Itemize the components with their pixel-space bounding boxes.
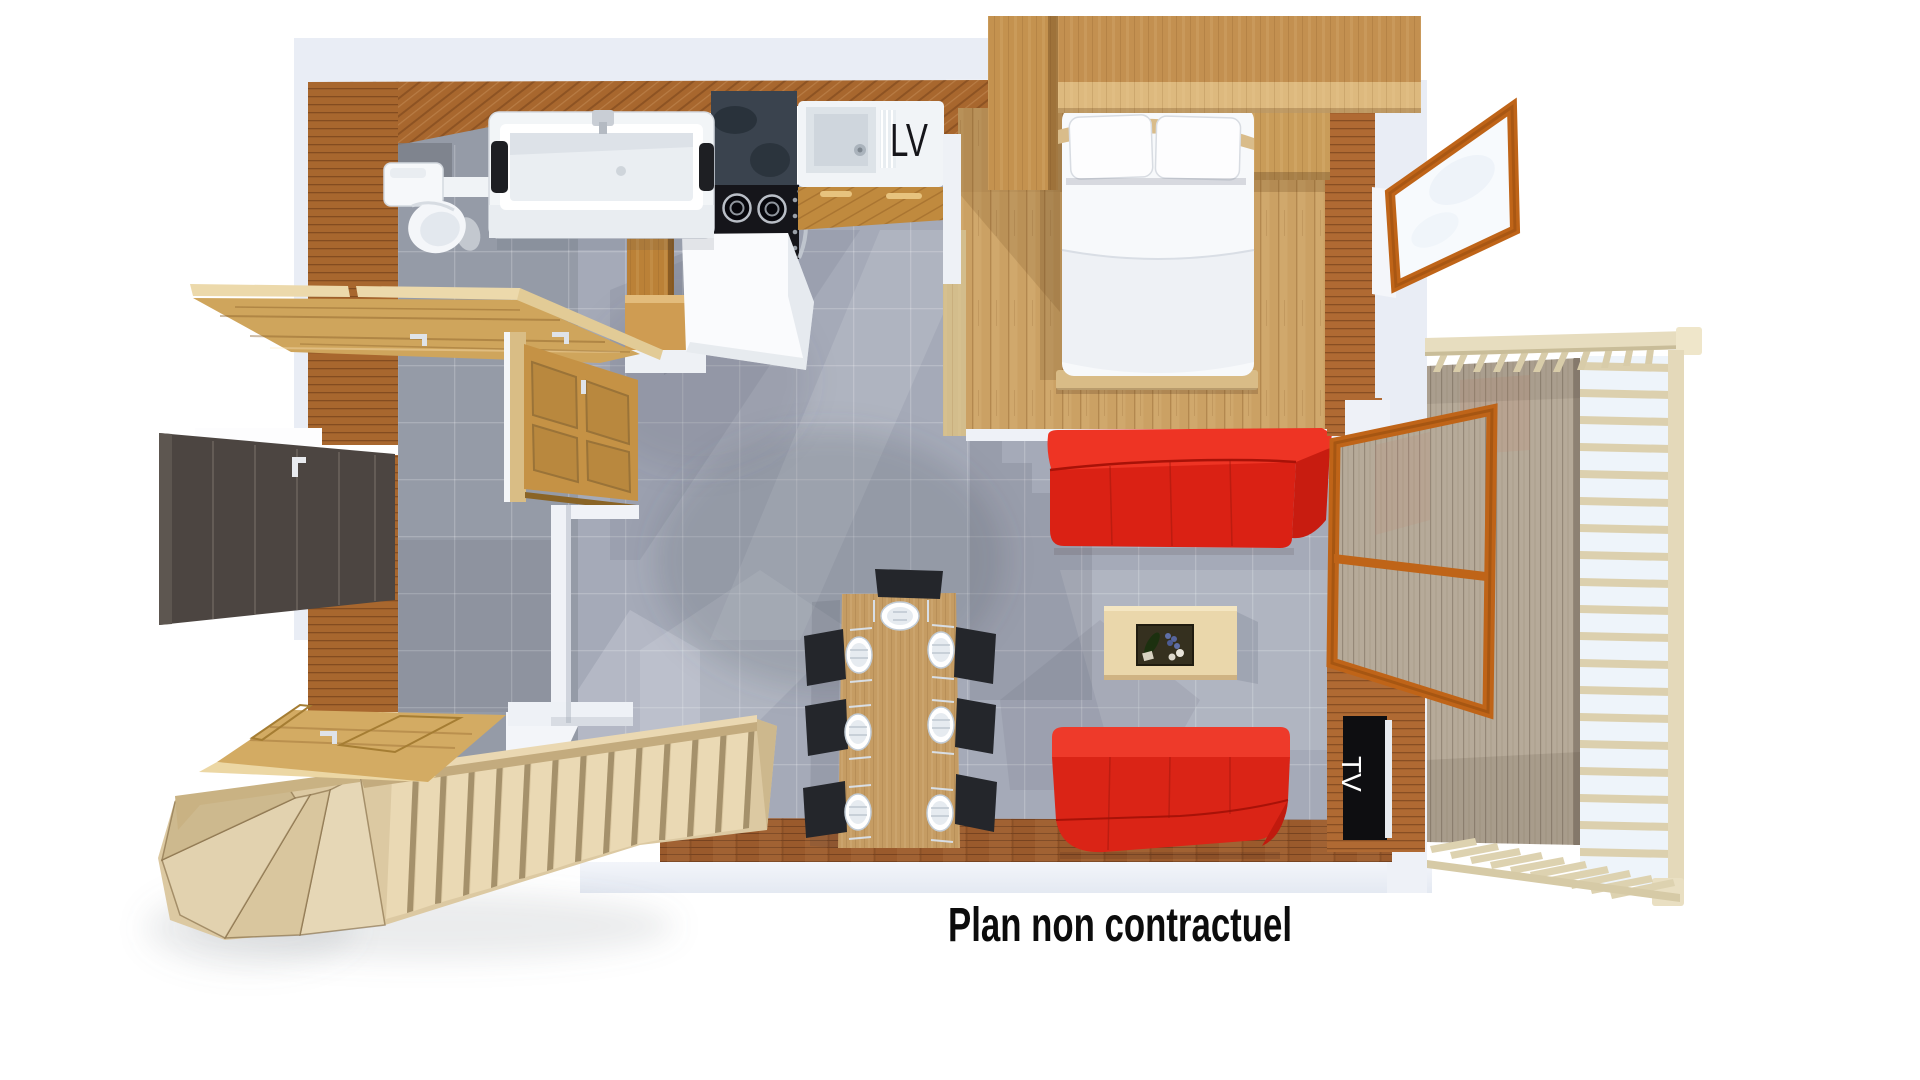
svg-text:TV: TV xyxy=(1336,756,1367,792)
svg-text:Plan non contractuel: Plan non contractuel xyxy=(948,899,1292,952)
svg-text:LV: LV xyxy=(890,114,928,166)
